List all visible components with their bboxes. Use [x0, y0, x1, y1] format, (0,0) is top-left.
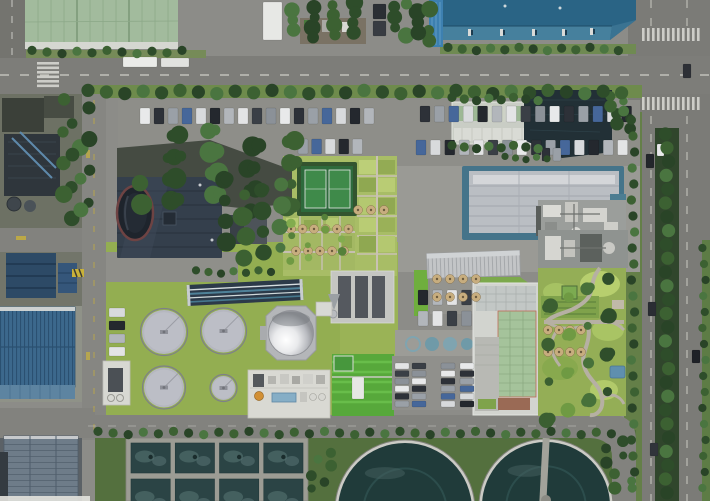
- left-road: [0, 0, 26, 58]
- southwest-gray-building: [0, 436, 82, 501]
- northeast-machinery: [538, 230, 628, 268]
- sage-warehouse: [25, 0, 178, 49]
- aeration-basins: [126, 438, 308, 501]
- scan-edge: [0, 496, 90, 501]
- gas-holder-dome: [269, 311, 314, 356]
- hopper-bays-building: [328, 271, 394, 323]
- covered-clarifier-building: [427, 250, 521, 278]
- left-access-road: [0, 228, 82, 252]
- aerial-photo: [0, 0, 710, 501]
- southwest-road: [0, 408, 95, 438]
- tennis-courts: [297, 162, 357, 216]
- teal-roof-building: [443, 0, 636, 40]
- admin-building-green-roof: [473, 283, 544, 415]
- equipment-yard: [248, 370, 330, 418]
- west-facility: [103, 361, 130, 405]
- blue-ribbed-building: [0, 306, 82, 402]
